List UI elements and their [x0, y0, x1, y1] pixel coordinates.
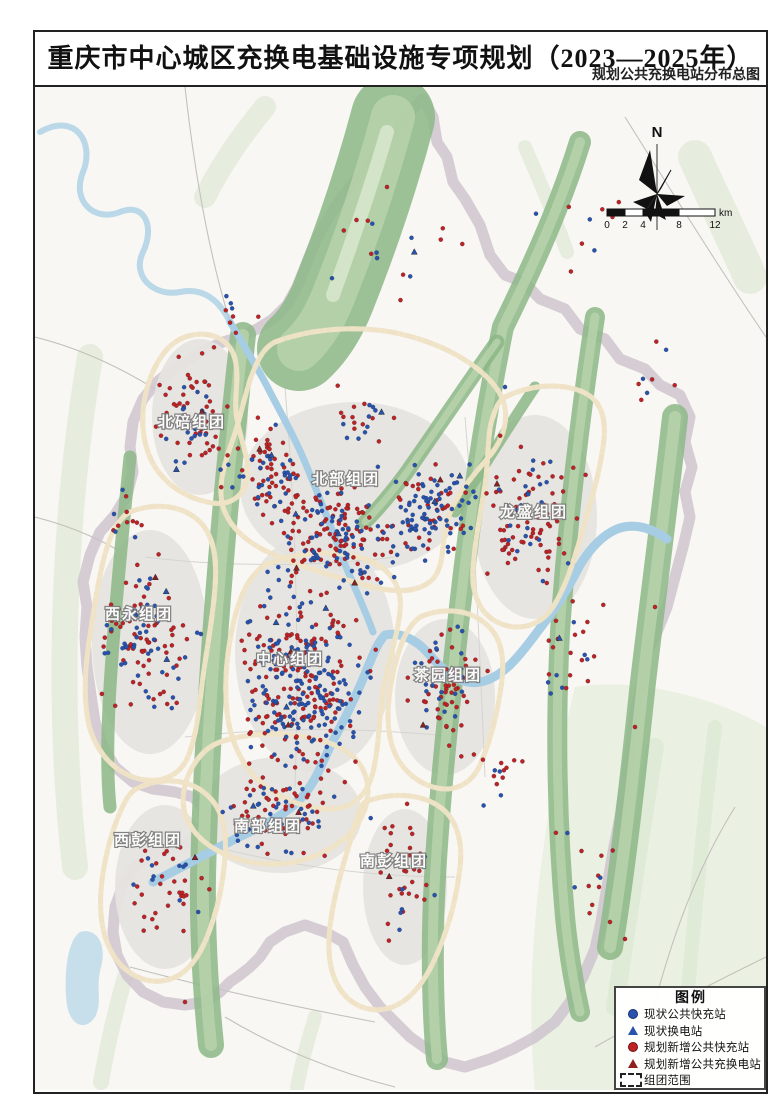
station-dot — [286, 568, 290, 572]
station-dot — [170, 633, 174, 637]
station-dot — [450, 507, 454, 511]
station-dot — [307, 821, 311, 825]
station-dot — [546, 568, 550, 572]
station-dot — [286, 534, 290, 538]
station-dot — [361, 422, 365, 426]
station-dot — [296, 647, 300, 651]
station-dot — [336, 384, 340, 388]
station-dot — [337, 562, 341, 566]
station-dot — [288, 674, 292, 678]
station-dot — [319, 637, 323, 641]
station-dot — [253, 688, 257, 692]
station-dot — [350, 569, 354, 573]
station-dot — [246, 679, 250, 683]
station-dot — [286, 623, 290, 627]
station-dot — [506, 561, 510, 565]
station-dot — [284, 800, 288, 804]
station-dot — [377, 439, 381, 443]
station-dot — [310, 810, 314, 814]
station-dot — [385, 524, 389, 528]
station-dot — [450, 700, 454, 704]
station-dot — [455, 480, 459, 484]
station-dot — [597, 885, 601, 889]
station-dot — [270, 787, 274, 791]
station-dot — [221, 810, 225, 814]
station-dot — [338, 699, 342, 703]
station-dot — [257, 675, 261, 679]
station-dot — [152, 697, 156, 701]
station-dot — [240, 468, 244, 472]
station-dot — [146, 652, 150, 656]
station-dot — [290, 632, 294, 636]
station-dot — [281, 462, 285, 466]
station-dot — [323, 706, 327, 710]
station-dot — [385, 849, 389, 853]
station-dot — [299, 615, 303, 619]
station-dot — [318, 738, 322, 742]
station-dot — [357, 691, 361, 695]
station-dot — [525, 526, 529, 530]
station-dot — [454, 687, 458, 691]
station-dot — [284, 735, 288, 739]
station-dot — [123, 661, 127, 665]
station-dot — [623, 937, 627, 941]
station-dot — [427, 505, 431, 509]
station-dot — [390, 524, 394, 528]
station-dot — [572, 620, 576, 624]
station-dot — [450, 645, 454, 649]
station-dot — [326, 656, 330, 660]
station-dot — [146, 624, 150, 628]
station-dot — [539, 543, 543, 547]
station-dot — [571, 599, 575, 603]
station-dot — [362, 402, 366, 406]
station-dot — [517, 496, 521, 500]
station-dot — [354, 218, 358, 222]
station-dot — [383, 826, 387, 830]
station-dot — [308, 589, 312, 593]
station-dot — [181, 929, 185, 933]
station-dot — [313, 705, 317, 709]
station-dot — [538, 531, 542, 535]
station-dot — [516, 524, 520, 528]
station-dot — [334, 547, 338, 551]
station-dot — [367, 576, 371, 580]
station-dot — [531, 531, 535, 535]
station-dot — [292, 595, 296, 599]
station-dot — [512, 758, 516, 762]
station-dot — [548, 460, 552, 464]
station-dot — [260, 744, 264, 748]
station-dot — [338, 742, 342, 746]
station-dot — [301, 707, 305, 711]
station-dot — [144, 585, 148, 589]
station-dot — [351, 555, 355, 559]
station-dot — [526, 492, 530, 496]
station-dot — [310, 536, 314, 540]
station-dot — [673, 383, 677, 387]
station-dot — [301, 718, 305, 722]
station-dot — [154, 861, 158, 865]
scale-tick: 12 — [709, 220, 721, 231]
station-dot — [120, 646, 124, 650]
station-dot — [387, 939, 391, 943]
station-dot — [325, 491, 329, 495]
station-dot — [134, 584, 138, 588]
station-dot — [136, 674, 140, 678]
station-dot — [411, 547, 415, 551]
station-dot — [129, 702, 133, 706]
station-dot — [422, 898, 426, 902]
station-dot — [456, 625, 460, 629]
legend-label: 组团范围 — [644, 1072, 691, 1088]
station-dot — [305, 669, 309, 673]
station-dot — [156, 647, 160, 651]
station-dot — [348, 719, 352, 723]
station-dot — [185, 637, 189, 641]
station-dot — [106, 651, 110, 655]
station-dot — [314, 496, 318, 500]
station-dot — [369, 527, 373, 531]
station-dot — [298, 679, 302, 683]
station-dot — [268, 638, 272, 642]
station-dot — [307, 714, 311, 718]
station-dot — [424, 708, 428, 712]
station-dot — [307, 686, 311, 690]
station-dot — [348, 724, 352, 728]
station-dot — [202, 380, 206, 384]
station-dot — [296, 726, 300, 730]
district-label: 南彭组团 — [360, 852, 428, 870]
station-dot — [413, 661, 417, 665]
station-dot — [266, 477, 270, 481]
station-dot — [549, 691, 553, 695]
station-dot — [511, 535, 515, 539]
station-dot — [598, 876, 602, 880]
station-dot — [523, 484, 527, 488]
station-dot — [519, 445, 523, 449]
station-dot — [145, 638, 149, 642]
station-dot — [650, 377, 654, 381]
station-dot — [118, 625, 122, 629]
station-dot — [365, 591, 369, 595]
station-dot — [310, 691, 314, 695]
station-dot — [592, 248, 596, 252]
station-dot — [272, 710, 276, 714]
station-dot — [284, 491, 288, 495]
station-dot — [351, 730, 355, 734]
station-dot — [140, 650, 144, 654]
station-dot — [135, 626, 139, 630]
station-dot — [339, 411, 343, 415]
station-dot — [267, 485, 271, 489]
station-dot — [172, 402, 176, 406]
station-dot — [367, 503, 371, 507]
station-dot — [344, 532, 348, 536]
station-dot — [454, 522, 458, 526]
station-dot — [147, 695, 151, 699]
station-dot — [322, 668, 326, 672]
station-dot — [113, 530, 117, 534]
station-dot — [304, 639, 308, 643]
station-dot — [265, 466, 269, 470]
station-dot — [305, 795, 309, 799]
station-dot — [260, 493, 264, 497]
station-dot — [564, 686, 568, 690]
station-dot — [294, 570, 298, 574]
station-dot — [142, 595, 146, 599]
station-dot — [219, 485, 223, 489]
station-dot — [236, 446, 240, 450]
station-dot — [392, 575, 396, 579]
station-dot — [433, 641, 437, 645]
station-dot — [436, 707, 440, 711]
station-dot — [406, 676, 410, 680]
station-dot — [347, 691, 351, 695]
station-dot — [361, 511, 365, 515]
station-dot — [228, 321, 232, 325]
station-dot — [261, 721, 265, 725]
station-dot — [468, 462, 472, 466]
station-dot — [283, 764, 287, 768]
station-dot — [331, 515, 335, 519]
station-dot — [212, 345, 216, 349]
station-dot — [306, 826, 310, 830]
station-dot — [376, 537, 380, 541]
station-dot — [400, 891, 404, 895]
legend-label: 现状公共快充站 — [644, 1006, 726, 1022]
station-dot — [409, 236, 413, 240]
station-dot — [337, 707, 341, 711]
station-dot — [291, 559, 295, 563]
station-dot — [407, 892, 411, 896]
station-dot — [359, 529, 363, 533]
station-dot — [208, 448, 212, 452]
station-dot — [568, 673, 572, 677]
station-dot — [400, 887, 404, 891]
station-dot — [590, 903, 594, 907]
station-dot — [375, 577, 379, 581]
station-dot — [131, 680, 135, 684]
station-dot — [325, 745, 329, 749]
station-dot — [599, 854, 603, 858]
station-dot — [330, 692, 334, 696]
station-dot — [408, 274, 412, 278]
legend-item-planned-charge-swap-station: 规划新增公共充换电站 — [622, 1056, 760, 1073]
station-dot — [279, 519, 283, 523]
station-dot — [301, 752, 305, 756]
station-dot — [561, 489, 565, 493]
station-dot — [423, 527, 427, 531]
station-dot — [317, 548, 321, 552]
station-dot — [302, 558, 306, 562]
station-dot — [326, 506, 330, 510]
station-dot — [183, 1000, 187, 1004]
station-dot — [230, 485, 234, 489]
station-dot — [352, 427, 356, 431]
station-dot — [324, 734, 328, 738]
station-dot — [499, 761, 503, 765]
station-dot — [176, 441, 180, 445]
station-dot — [261, 479, 265, 483]
station-dot — [177, 355, 181, 359]
station-dot — [245, 844, 249, 848]
scale-unit: km — [719, 208, 732, 219]
station-dot — [330, 276, 334, 280]
station-dot — [320, 509, 324, 513]
station-dot — [446, 504, 450, 508]
station-dot — [557, 537, 561, 541]
station-dot — [426, 547, 430, 551]
station-dot — [354, 618, 358, 622]
station-dot — [388, 893, 392, 897]
station-dot — [586, 679, 590, 683]
station-dot — [515, 549, 519, 553]
station-dot — [278, 718, 282, 722]
station-dot — [256, 645, 260, 649]
station-dot — [497, 488, 501, 492]
station-dot — [257, 485, 261, 489]
station-dot — [297, 702, 301, 706]
station-dot — [313, 710, 317, 714]
station-dot — [447, 744, 451, 748]
station-dot — [264, 499, 268, 503]
station-dot — [293, 765, 297, 769]
station-dot — [507, 538, 511, 542]
station-dot — [455, 705, 459, 709]
station-dot — [205, 441, 209, 445]
station-dot — [448, 486, 452, 490]
district-label: 茶园组团 — [414, 666, 482, 684]
station-dot — [262, 691, 266, 695]
station-dot — [459, 723, 463, 727]
station-dot — [266, 588, 270, 592]
station-dot — [338, 659, 342, 663]
station-dot — [306, 540, 310, 544]
station-dot — [341, 527, 345, 531]
station-dot — [424, 883, 428, 887]
station-dot — [395, 553, 399, 557]
station-dot — [498, 528, 502, 532]
station-dot — [364, 526, 368, 530]
station-dot — [534, 212, 538, 216]
station-dot — [102, 645, 106, 649]
station-dot — [460, 498, 464, 502]
station-dot — [404, 482, 408, 486]
station-dot — [268, 457, 272, 461]
station-dot — [142, 929, 146, 933]
lake — [66, 931, 103, 1025]
station-dot — [125, 510, 129, 514]
station-dot — [452, 547, 456, 551]
station-dot — [467, 501, 471, 505]
station-dot — [291, 718, 295, 722]
station-dot — [337, 586, 341, 590]
station-dot — [281, 441, 285, 445]
station-dot — [158, 383, 162, 387]
station-dot — [274, 484, 278, 488]
station-dot — [294, 495, 298, 499]
station-dot — [258, 604, 262, 608]
station-dot — [276, 758, 280, 762]
station-dot — [608, 920, 612, 924]
station-dot — [273, 668, 277, 672]
station-dot — [427, 531, 431, 535]
station-dot — [303, 703, 307, 707]
station-dot — [133, 901, 137, 905]
station-dot — [301, 542, 305, 546]
station-dot — [275, 675, 279, 679]
station-dot — [204, 394, 208, 398]
station-dot — [482, 803, 486, 807]
station-dot — [473, 495, 477, 499]
station-dot — [199, 632, 203, 636]
station-dot — [171, 857, 175, 861]
station-dot — [278, 500, 282, 504]
station-dot — [531, 487, 535, 491]
station-dot — [316, 752, 320, 756]
station-dot — [381, 553, 385, 557]
station-dot — [276, 565, 280, 569]
station-dot — [282, 531, 286, 535]
station-dot — [424, 499, 428, 503]
station-dot — [555, 673, 559, 677]
station-dot — [444, 724, 448, 728]
station-dot — [292, 521, 296, 525]
district-label: 北部组团 — [312, 470, 380, 488]
station-dot — [352, 421, 356, 425]
station-dot — [410, 880, 414, 884]
station-dot — [380, 537, 384, 541]
station-dot — [257, 634, 261, 638]
station-dot — [246, 717, 250, 721]
station-dot — [291, 462, 295, 466]
station-dot — [274, 699, 278, 703]
station-dot — [182, 385, 186, 389]
station-dot — [585, 657, 589, 661]
station-dot — [508, 524, 512, 528]
station-dot — [261, 513, 265, 517]
station-dot — [284, 850, 288, 854]
station-dot — [263, 808, 267, 812]
station-dot — [592, 654, 596, 658]
station-dot — [135, 635, 139, 639]
station-dot — [439, 238, 443, 242]
station-dot — [311, 549, 315, 553]
station-dot — [133, 535, 137, 539]
station-dot — [513, 557, 517, 561]
station-dot — [310, 508, 314, 512]
station-dot — [445, 524, 449, 528]
station-dot — [142, 623, 146, 627]
station-dot — [398, 298, 402, 302]
station-dot — [262, 643, 266, 647]
station-dot — [504, 766, 508, 770]
station-dot — [424, 689, 428, 693]
station-dot — [250, 477, 254, 481]
station-dot — [258, 466, 262, 470]
station-dot — [109, 627, 113, 631]
station-dot — [385, 537, 389, 541]
station-dot — [252, 788, 256, 792]
station-dot — [289, 851, 293, 855]
station-dot — [299, 807, 303, 811]
station-dot — [457, 504, 461, 508]
station-dot — [293, 791, 297, 795]
station-dot — [338, 635, 342, 639]
station-dot — [405, 802, 409, 806]
station-dot — [337, 503, 341, 507]
